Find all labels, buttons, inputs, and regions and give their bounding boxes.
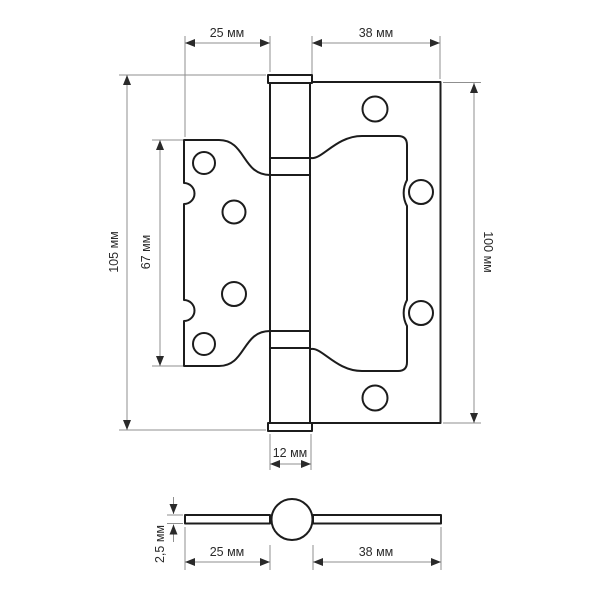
barrel-body xyxy=(270,83,310,423)
screw-hole xyxy=(409,301,433,325)
dimension-leaf-left-width: 25 мм xyxy=(185,26,270,137)
dimension-leaf-left-height: 67 мм xyxy=(139,140,183,366)
screw-hole xyxy=(363,386,388,411)
screw-hole xyxy=(222,282,246,306)
dimension-label: 2,5 мм xyxy=(153,525,167,563)
side-view-right-plate xyxy=(313,515,441,524)
dimension-label: 25 мм xyxy=(210,26,245,40)
dimension-label: 12 мм xyxy=(273,446,308,460)
barrel-bottom-cap xyxy=(268,423,312,431)
dimension-plate-thickness: 2,5 мм xyxy=(153,497,183,563)
dimension-knuckle-width: 12 мм xyxy=(270,434,311,470)
dimension-leaf-left-width-side: 25 мм xyxy=(185,527,270,570)
drawing-canvas: 25 мм 38 мм 105 мм 67 мм 100 xyxy=(0,0,600,600)
hinge-side-view xyxy=(185,499,441,540)
hinge-technical-drawing: 25 мм 38 мм 105 мм 67 мм 100 xyxy=(0,0,600,600)
dimension-label: 25 мм xyxy=(210,545,245,559)
dimension-label: 38 мм xyxy=(359,26,394,40)
dimension-label: 105 мм xyxy=(107,231,121,273)
side-view-barrel xyxy=(272,499,313,540)
screw-hole xyxy=(193,152,215,174)
screw-hole xyxy=(223,201,246,224)
barrel-top-cap xyxy=(268,75,312,83)
dimension-label: 100 мм xyxy=(481,231,495,273)
dimension-label: 67 мм xyxy=(139,235,153,270)
screw-hole xyxy=(409,180,433,204)
dimension-leaf-right-width: 38 мм xyxy=(312,26,440,79)
screw-hole xyxy=(193,333,215,355)
left-leaf-outline xyxy=(184,140,270,366)
dimension-leaf-right-height: 100 мм xyxy=(443,83,495,424)
dimension-label: 38 мм xyxy=(359,545,394,559)
screw-hole xyxy=(363,97,388,122)
hinge-front-view xyxy=(184,75,441,431)
dimension-leaf-right-width-side: 38 мм xyxy=(313,527,441,570)
side-view-left-plate xyxy=(185,515,270,524)
